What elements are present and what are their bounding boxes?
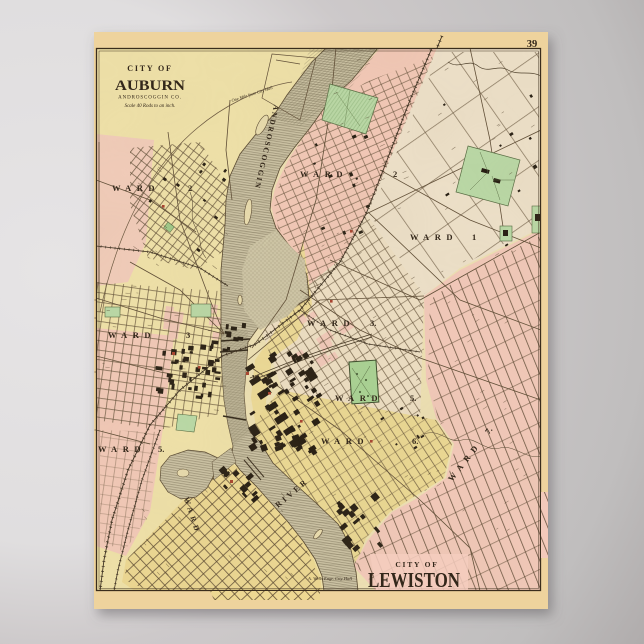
svg-text:ANDROSCOGGIN CO.: ANDROSCOGGIN CO. bbox=[118, 96, 182, 101]
svg-text:5.: 5. bbox=[410, 393, 416, 403]
svg-text:3: 3 bbox=[186, 330, 190, 340]
svg-text:3.: 3. bbox=[370, 318, 376, 328]
svg-text:6.: 6. bbox=[412, 436, 418, 446]
svg-text:WARD: WARD bbox=[321, 436, 369, 446]
svg-text:WARD: WARD bbox=[307, 318, 355, 328]
svg-text:WARD: WARD bbox=[335, 393, 383, 403]
svg-text:WARD: WARD bbox=[108, 330, 156, 340]
svg-text:WARD: WARD bbox=[410, 232, 458, 242]
svg-text:Scale 40 Rods to an inch.: Scale 40 Rods to an inch. bbox=[125, 104, 176, 109]
svg-text:A. Wells Engr. City Hall: A. Wells Engr. City Hall bbox=[307, 576, 353, 581]
svg-text:WARD: WARD bbox=[98, 444, 146, 454]
svg-text:2: 2 bbox=[188, 183, 192, 193]
svg-text:AUBURN: AUBURN bbox=[115, 78, 186, 94]
svg-text:5.: 5. bbox=[158, 444, 164, 454]
svg-text:CITY OF: CITY OF bbox=[127, 64, 172, 73]
svg-text:WARD: WARD bbox=[300, 169, 348, 179]
svg-text:1: 1 bbox=[472, 232, 476, 242]
svg-text:WARD: WARD bbox=[112, 183, 160, 193]
svg-text:W.4: W.4 bbox=[252, 374, 273, 382]
svg-text:39: 39 bbox=[527, 39, 538, 50]
svg-text:LEWISTON: LEWISTON bbox=[368, 568, 460, 592]
svg-text:2: 2 bbox=[393, 169, 397, 179]
